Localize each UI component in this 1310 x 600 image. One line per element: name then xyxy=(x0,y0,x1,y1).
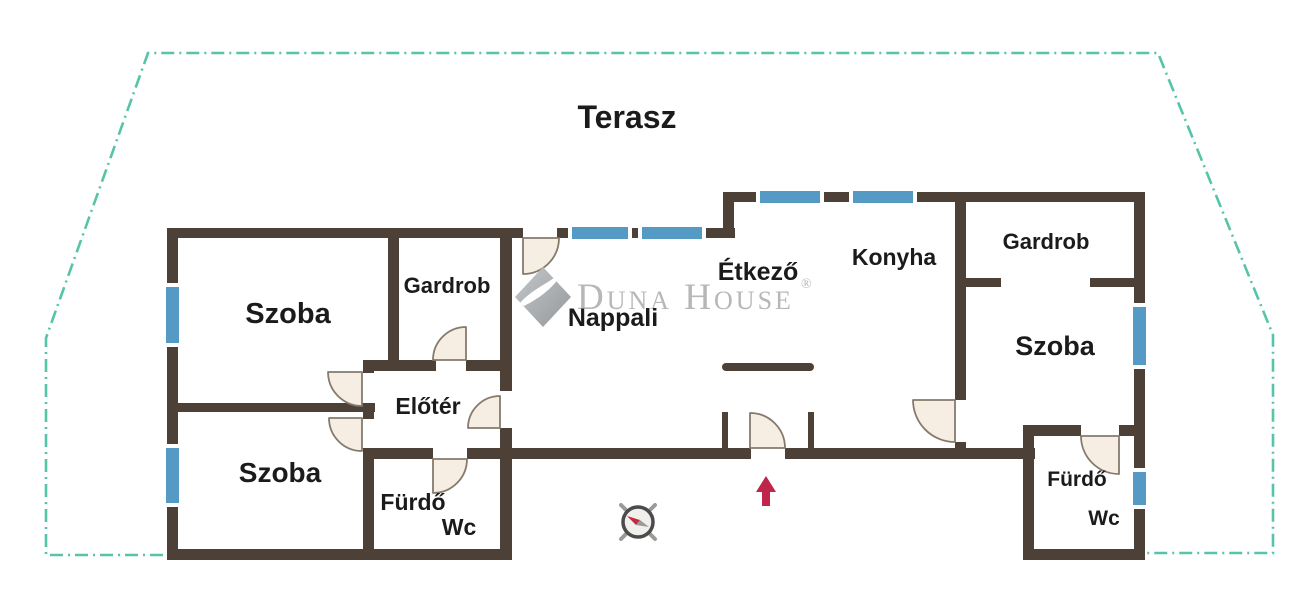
wall-segment xyxy=(167,403,375,412)
door-arc-icon xyxy=(523,238,559,274)
wall-segment xyxy=(955,442,966,459)
door-arc-icon xyxy=(433,459,467,493)
wall-segment xyxy=(723,192,734,238)
window-segment xyxy=(760,191,820,203)
wall-segment xyxy=(955,202,966,400)
wall-segment xyxy=(966,278,1001,287)
wall-segment xyxy=(167,228,178,560)
wall-segment xyxy=(1090,278,1134,287)
wall-segment xyxy=(808,412,814,448)
wall-segment xyxy=(167,228,523,238)
window-segment xyxy=(572,227,628,239)
brand-diamond-icon xyxy=(515,267,571,327)
wall-segment xyxy=(1023,425,1034,560)
window-segment xyxy=(166,287,179,343)
wall-segment xyxy=(1119,425,1134,436)
door-arc-icon xyxy=(329,418,362,451)
wall-segment xyxy=(363,405,374,419)
room-label-gardrob-right: Gardrob xyxy=(1003,229,1090,254)
wall-segment xyxy=(1023,549,1145,560)
window-segment xyxy=(166,448,179,503)
room-label-gardrob-left: Gardrob xyxy=(404,273,491,298)
wall-segment xyxy=(388,228,399,365)
wall-segment xyxy=(820,192,854,202)
room-label-szoba-right: Szoba xyxy=(1015,331,1095,361)
floorplan-page: Duna House ® Terasz Szoba Gardrob Előtér… xyxy=(0,0,1310,600)
window-segment xyxy=(853,191,913,203)
wall-segment xyxy=(167,549,512,560)
wall-segment xyxy=(363,360,374,373)
wall-segment xyxy=(500,228,512,391)
floorplan-canvas: Duna House ® Terasz Szoba Gardrob Előtér… xyxy=(0,0,1310,600)
watermark-registered-mark: ® xyxy=(801,277,812,292)
window-segment xyxy=(1133,472,1146,505)
wall-segment xyxy=(363,448,433,459)
entrance-arrow-icon xyxy=(756,476,776,506)
room-label-wc-right: Wc xyxy=(1088,507,1120,530)
door-arc-icon xyxy=(750,413,785,448)
wall-segment xyxy=(785,448,1035,459)
room-label-etkezo: Étkező xyxy=(718,257,799,286)
room-label-furdo-left: Fürdő xyxy=(380,489,445,515)
room-label-eloter: Előtér xyxy=(395,393,460,419)
door-arc-icon xyxy=(468,396,500,428)
room-label-furdo-right: Fürdő xyxy=(1047,468,1106,491)
room-label-konyha: Konyha xyxy=(852,244,937,270)
wall-segment xyxy=(722,363,814,371)
room-label-terasz: Terasz xyxy=(577,99,676,135)
wall-segment xyxy=(913,192,1145,202)
room-label-szoba-lower-left: Szoba xyxy=(239,457,322,488)
window-segment xyxy=(1133,307,1146,365)
door-arc-icon xyxy=(328,372,362,406)
wall-segment xyxy=(500,448,751,459)
wall-segment xyxy=(363,450,374,560)
compass-icon xyxy=(621,505,655,539)
room-label-szoba-upper-left: Szoba xyxy=(245,298,331,330)
door-arc-icon xyxy=(433,327,466,360)
window-segment xyxy=(642,227,702,239)
wall-segment xyxy=(500,428,512,560)
room-label-nappali: Nappali xyxy=(568,304,658,332)
wall-segment xyxy=(722,412,728,448)
room-label-wc-left: Wc xyxy=(442,514,477,540)
door-arc-icon xyxy=(913,400,955,442)
